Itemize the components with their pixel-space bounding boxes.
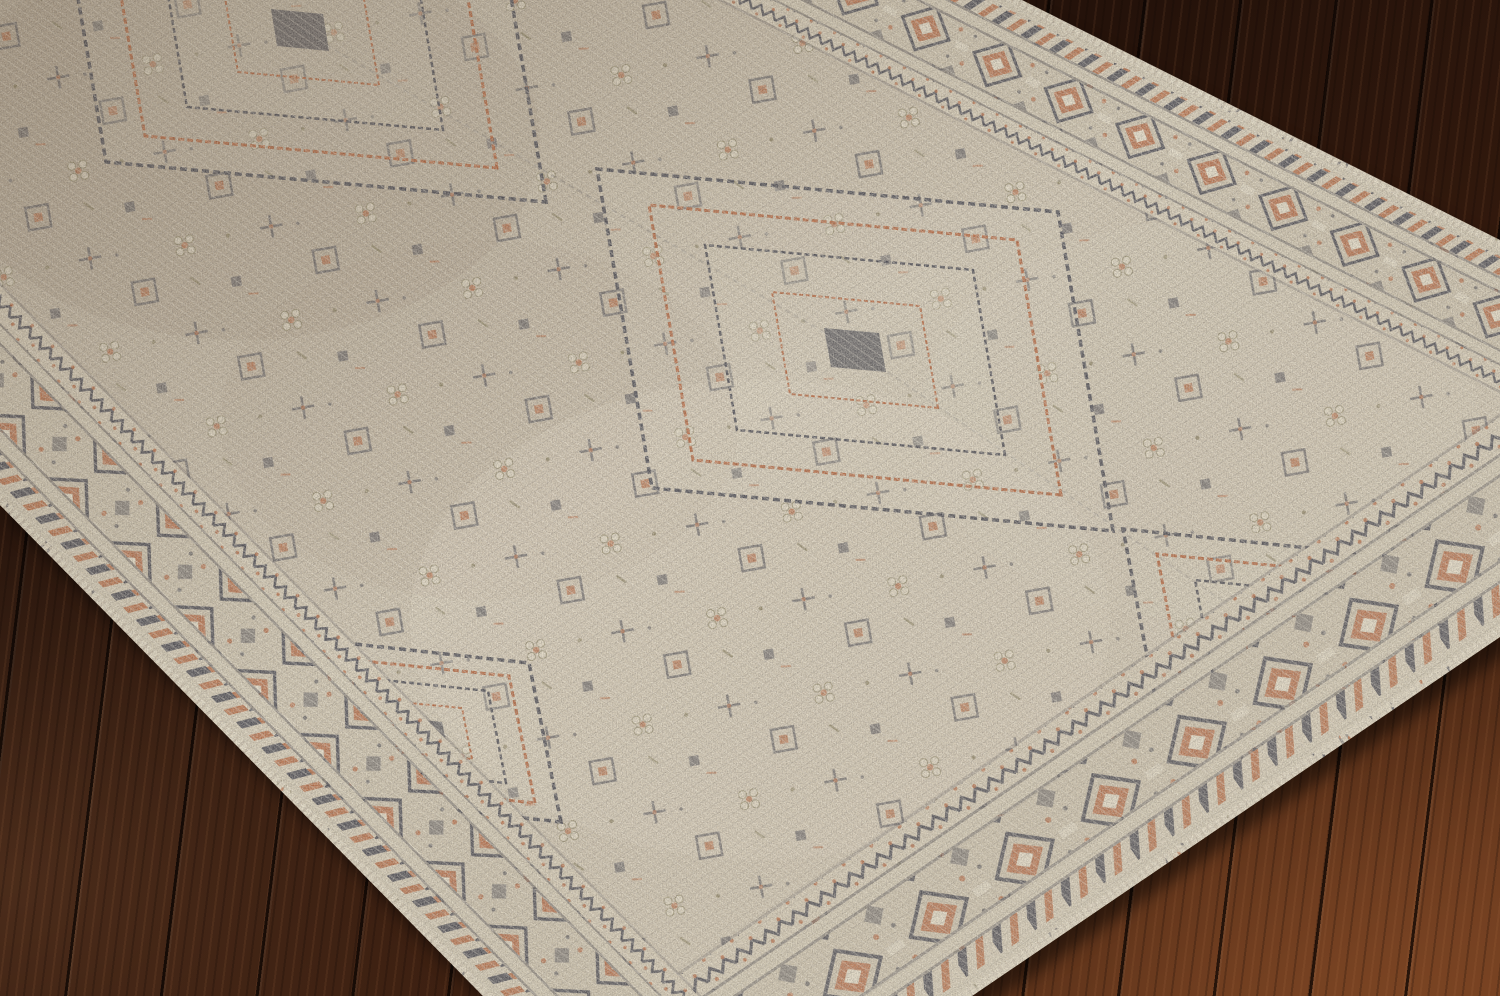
rug-body bbox=[0, 0, 1500, 996]
area-rug bbox=[0, 0, 1500, 996]
rug-photo-scene: Angled close-up photograph of a vintage-… bbox=[0, 0, 1500, 996]
lighting-vignette bbox=[0, 0, 1500, 996]
